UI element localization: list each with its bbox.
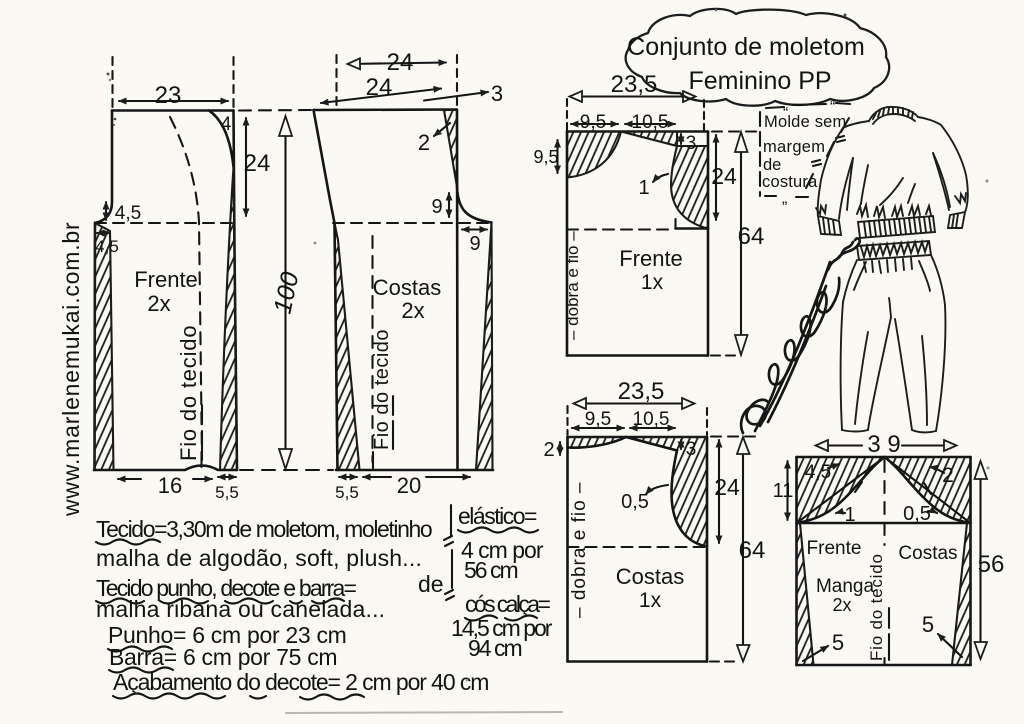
svg-text:9,5: 9,5 [533, 147, 558, 167]
svg-text:Costas: Costas [373, 275, 441, 300]
svg-text:de: de [418, 571, 444, 597]
svg-text:9,5: 9,5 [580, 112, 606, 133]
svg-text:malha de algodão, soft, plush.: malha de algodão, soft, plush... [96, 545, 422, 571]
svg-text:20: 20 [397, 473, 421, 498]
svg-text:2x: 2x [832, 595, 851, 615]
svg-text:Fio do tecido: Fio do tecido [176, 325, 201, 461]
svg-text:www.marlenemukai.com.br: www.marlenemukai.com.br [58, 222, 84, 517]
svg-text:de: de [763, 156, 781, 174]
svg-text:64: 64 [739, 537, 766, 564]
svg-text:23: 23 [155, 82, 182, 109]
svg-text:94 cm: 94 cm [468, 635, 521, 661]
svg-text:5,5: 5,5 [335, 483, 359, 502]
svg-text:4,5: 4,5 [805, 462, 831, 483]
svg-text:3: 3 [491, 81, 503, 106]
svg-text:Frente: Frente [619, 246, 683, 271]
svg-text:24: 24 [387, 49, 414, 76]
svg-text:Frente: Frente [807, 538, 862, 559]
svg-text:24: 24 [366, 74, 393, 101]
svg-text:4: 4 [221, 114, 232, 135]
svg-text:Feminino PP: Feminino PP [688, 67, 831, 95]
svg-text:24: 24 [711, 163, 737, 189]
svg-text:9,5: 9,5 [585, 409, 611, 430]
svg-text:Costas: Costas [616, 564, 684, 589]
svg-text:– dobra e fio –: – dobra e fio – [563, 231, 582, 340]
svg-text:Fio do tecido: Fio do tecido [867, 553, 886, 661]
svg-text:„: „ [782, 190, 787, 207]
svg-text:24: 24 [714, 474, 740, 500]
svg-text:0,5: 0,5 [621, 491, 649, 513]
svg-text:1x: 1x [639, 589, 662, 612]
svg-text:Tecido=3,30m de moletom, mol: Tecido=3,30m de moletom, moletinho [96, 516, 432, 542]
svg-text:1: 1 [844, 504, 855, 526]
svg-text:Açabamento do decote= 2 cm: Açabamento do decote= 2 cm por 40 cm [113, 669, 488, 695]
svg-text:“: “ [830, 99, 835, 116]
svg-text:1: 1 [638, 177, 649, 199]
svg-text:Fio do tecido: Fio do tecido [371, 329, 393, 450]
svg-text:Frente: Frente [134, 267, 198, 292]
svg-text:23,5: 23,5 [618, 378, 665, 405]
svg-text:11: 11 [773, 480, 794, 502]
svg-text:5: 5 [922, 612, 934, 637]
svg-text:Manga: Manga [816, 576, 875, 597]
svg-text:Conjunto de moletom: Conjunto de moletom [627, 33, 865, 61]
svg-text:Barra= 6 cm por 75 cm: Barra= 6 cm por 75 cm [109, 644, 337, 670]
svg-text:1x: 1x [641, 271, 664, 294]
svg-text:23,5: 23,5 [611, 71, 658, 98]
svg-text:9: 9 [469, 233, 480, 255]
svg-text:elástico=: elástico= [458, 503, 537, 529]
svg-text:10,5: 10,5 [633, 409, 670, 430]
svg-text:2: 2 [418, 130, 430, 155]
svg-text:Costas: Costas [898, 543, 957, 564]
svg-text:2: 2 [942, 464, 954, 487]
svg-text:16: 16 [158, 473, 182, 498]
svg-text:3 9: 3 9 [867, 431, 900, 458]
svg-text:9: 9 [431, 196, 442, 218]
svg-text:2: 2 [543, 439, 554, 461]
svg-text:56: 56 [978, 551, 1005, 578]
svg-text:5: 5 [832, 630, 844, 655]
svg-text:“: “ [783, 105, 788, 122]
svg-text:64: 64 [738, 223, 765, 250]
svg-text:margem: margem [763, 138, 825, 156]
svg-text:10,5: 10,5 [632, 112, 669, 133]
svg-text:5,5: 5,5 [215, 483, 239, 502]
svg-text:4,5: 4,5 [115, 203, 141, 224]
svg-text:0,5: 0,5 [903, 503, 931, 525]
svg-text:– dobra e fio –: – dobra e fio – [569, 482, 590, 618]
svg-text:56 cm: 56 cm [464, 557, 517, 583]
svg-text:cós calça=: cós calça= [465, 591, 550, 617]
svg-text:24: 24 [244, 150, 271, 177]
svg-text:2x: 2x [147, 291, 170, 316]
svg-text:2x: 2x [401, 298, 424, 323]
svg-text:3: 3 [686, 439, 697, 460]
